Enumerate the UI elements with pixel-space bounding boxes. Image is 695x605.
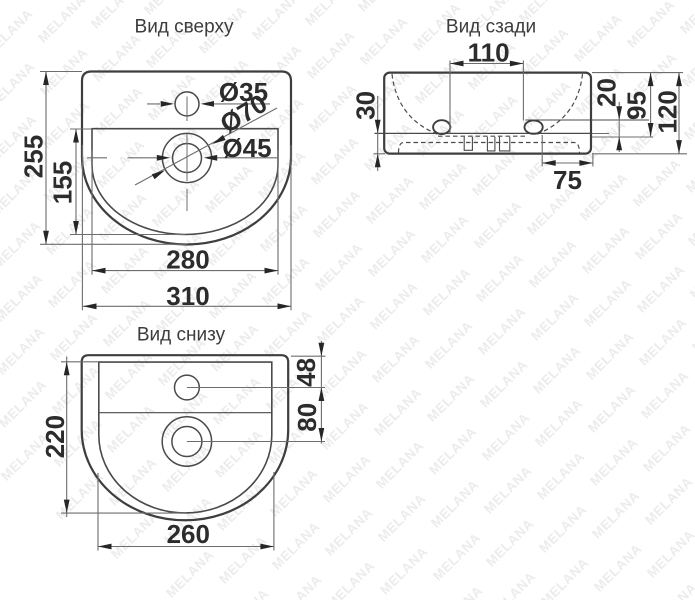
svg-text:30: 30: [351, 91, 381, 120]
svg-text:80: 80: [292, 403, 322, 432]
svg-text:155: 155: [48, 161, 78, 204]
svg-text:280: 280: [166, 245, 209, 275]
svg-text:48: 48: [291, 358, 321, 387]
svg-text:75: 75: [553, 165, 582, 195]
svg-text:255: 255: [19, 135, 49, 178]
svg-text:Вид снизу: Вид снизу: [137, 324, 226, 345]
svg-text:220: 220: [40, 415, 70, 458]
svg-text:260: 260: [167, 519, 210, 549]
svg-text:Вид сзади: Вид сзади: [446, 17, 536, 38]
svg-text:110: 110: [468, 38, 510, 68]
svg-text:20: 20: [592, 78, 622, 107]
svg-text:Вид сверху: Вид сверху: [135, 17, 234, 38]
svg-text:310: 310: [166, 281, 209, 311]
svg-text:120: 120: [653, 90, 683, 133]
svg-text:95: 95: [622, 91, 652, 120]
